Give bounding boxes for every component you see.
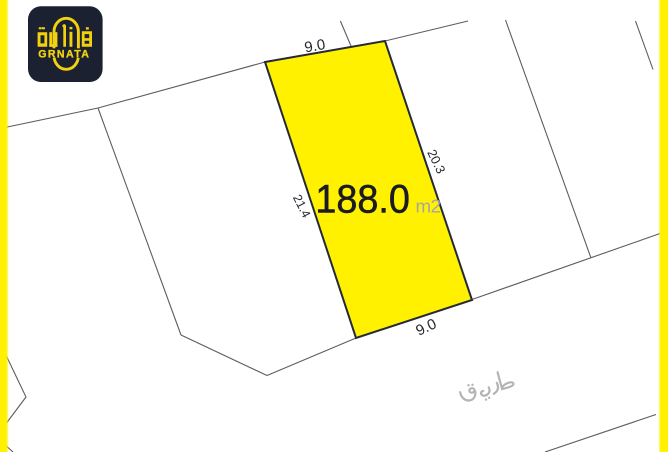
svg-text:m2: m2 [416,195,441,216]
svg-text:9.0: 9.0 [303,36,326,56]
svg-text:GRNATA: GRNATA [38,48,90,60]
svg-text:188.0: 188.0 [315,177,410,221]
